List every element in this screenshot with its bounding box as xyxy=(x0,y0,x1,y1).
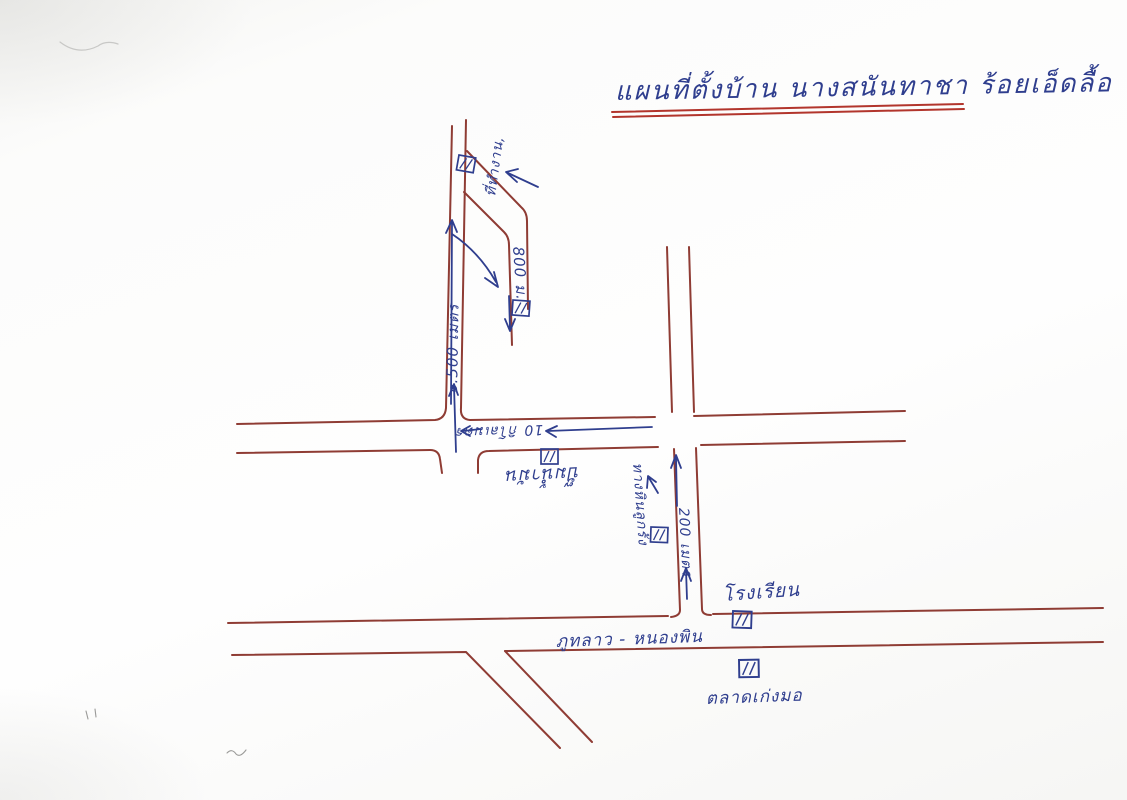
gravel-road-pointer-arrow xyxy=(647,476,658,493)
label-gravel-road: ทางหินลูกรัง xyxy=(629,462,651,546)
workplace-pointer-arrow xyxy=(506,169,538,187)
left-arrow-highway-long xyxy=(546,426,652,437)
building-icon-fuel-station xyxy=(541,449,558,464)
scan-artifacts xyxy=(60,42,246,755)
label-main-road-distance: ๑.500 เมตร xyxy=(443,302,463,394)
labels: ที่ทำงาน, 800 ม. ๑.500 เมตร 10 กิโลเมตร … xyxy=(443,134,803,709)
road-bottom-top-east xyxy=(713,608,1103,614)
road-side-vertical-west-upper xyxy=(667,247,672,412)
building-icon-side-road xyxy=(650,527,668,543)
label-fuel-station: ปั๊มน้ำมัน xyxy=(505,462,581,491)
roads xyxy=(228,120,1103,748)
road-middle-top-east xyxy=(694,411,905,416)
road-middle-bottom-east xyxy=(701,441,905,445)
arrows xyxy=(446,169,691,599)
label-market: ตลาดเก่งมอ xyxy=(705,686,803,709)
road-middle-bottom-west xyxy=(237,450,442,473)
road-fork-diagonal xyxy=(505,651,592,742)
road-bottom-top-west xyxy=(228,616,668,623)
hand-drawn-map: แผนที่ตั้งบ้าน นางสนันทาชา ร้อยเอ็ดลื้อ … xyxy=(0,0,1127,800)
pen-speck xyxy=(227,750,246,755)
scanned-paper: แผนที่ตั้งบ้าน นางสนันทาชา ร้อยเอ็ดลื้อ … xyxy=(0,0,1127,800)
building-icon-market xyxy=(739,660,759,678)
crease-mark xyxy=(60,42,118,50)
map-title: แผนที่ตั้งบ้าน นางสนันทาชา ร้อยเอ็ดลื้อ xyxy=(615,63,1114,107)
title-block: แผนที่ตั้งบ้าน นางสนันทาชา ร้อยเอ็ดลื้อ xyxy=(612,63,1113,117)
road-bottom-bottom-and-fork xyxy=(232,652,560,748)
road-main-vertical-west-line xyxy=(237,126,452,424)
pen-speck xyxy=(86,709,96,719)
label-deadend-distance: 800 ม. xyxy=(509,246,531,301)
up-arrow-side-road-upper xyxy=(671,455,681,506)
label-school: โรงเรียน xyxy=(722,578,801,606)
curved-turn-arrow xyxy=(452,234,498,287)
road-side-vertical-east-upper xyxy=(689,247,694,412)
road-side-vertical-east-lower xyxy=(696,448,711,615)
label-highway-distance: 10 กิโลเมตร xyxy=(455,421,543,441)
